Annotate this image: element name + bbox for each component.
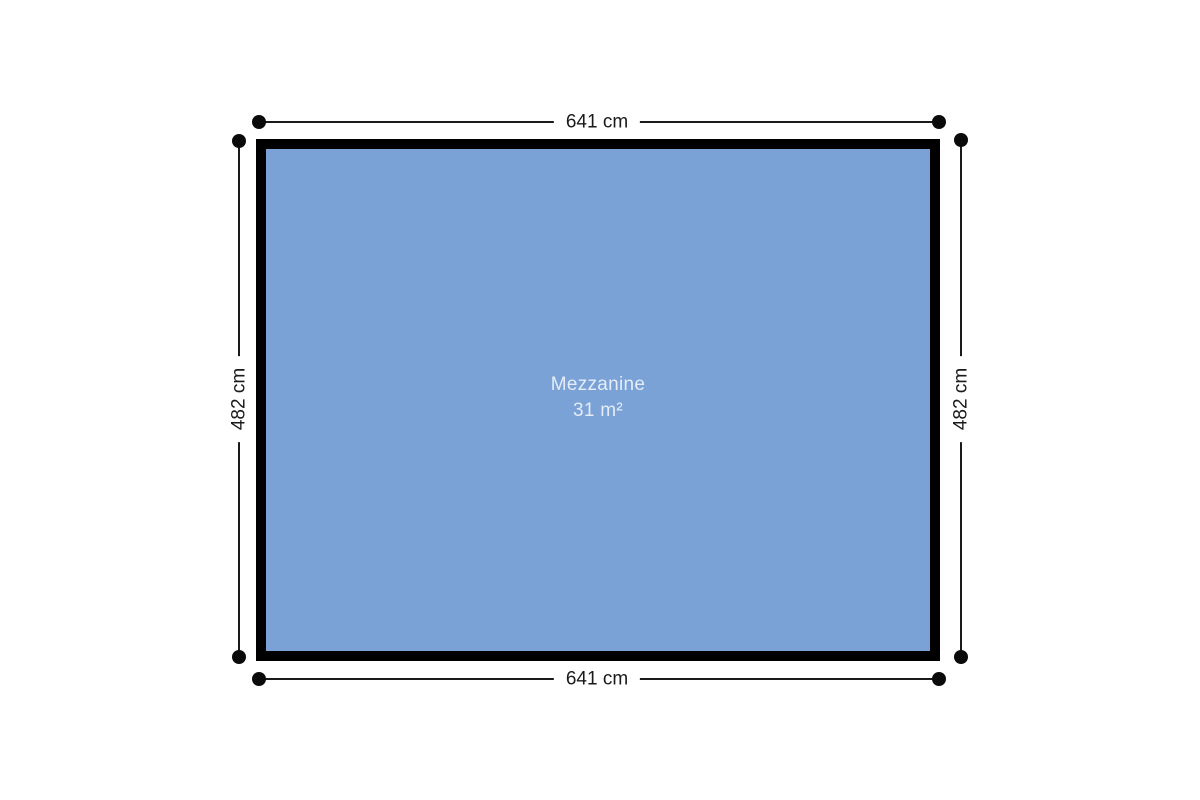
dimension-label-left: 482 cm xyxy=(228,356,251,442)
dimension-endpoint-dot-right-top xyxy=(954,133,968,147)
dimension-endpoint-dot-left-top xyxy=(232,134,246,148)
dimension-endpoint-dot-top-right xyxy=(932,115,946,129)
dimension-endpoint-dot-bottom-left xyxy=(252,672,266,686)
floor-plan-canvas: 641 cm 641 cm 482 cm 482 cm Mezzanine 31… xyxy=(0,0,1200,800)
dimension-label-top: 641 cm xyxy=(554,111,640,134)
room-mezzanine: Mezzanine 31 m² xyxy=(256,139,940,661)
room-label: Mezzanine 31 m² xyxy=(551,372,646,424)
dimension-endpoint-dot-left-bottom xyxy=(232,650,246,664)
room-area: 31 m² xyxy=(551,398,646,424)
dimension-endpoint-dot-top-left xyxy=(252,115,266,129)
dimension-label-bottom: 641 cm xyxy=(554,668,640,691)
dimension-endpoint-dot-right-bottom xyxy=(954,650,968,664)
dimension-endpoint-dot-bottom-right xyxy=(932,672,946,686)
room-name: Mezzanine xyxy=(551,372,646,398)
dimension-label-right: 482 cm xyxy=(950,356,973,442)
